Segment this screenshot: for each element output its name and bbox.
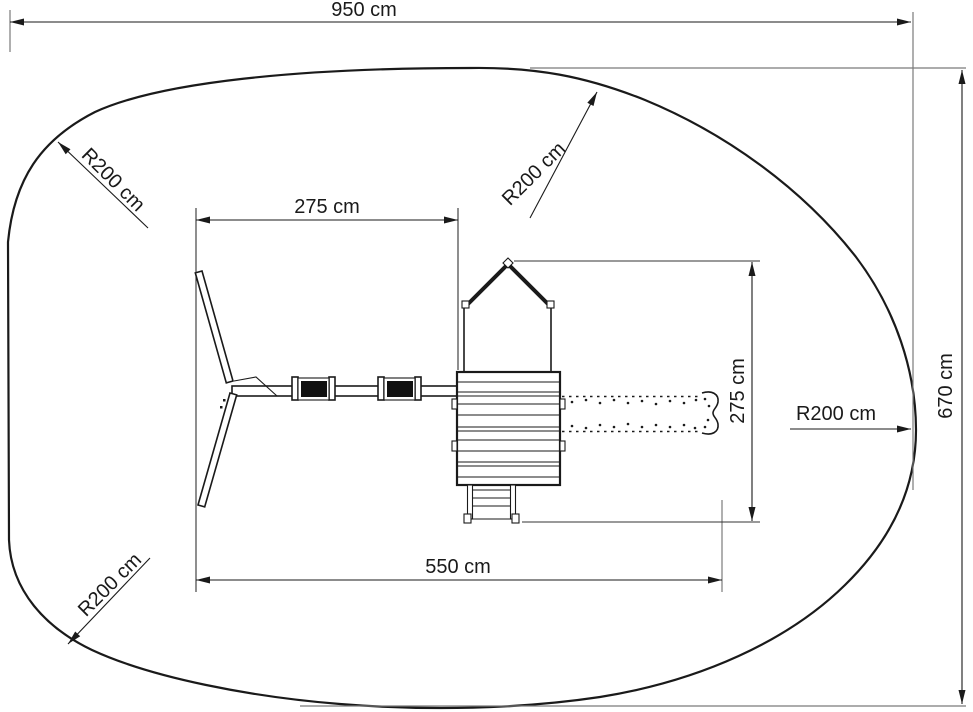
ladder — [464, 485, 519, 523]
tower-post — [560, 441, 565, 451]
dim-overall-width-label: 950 cm — [314, 0, 414, 21]
tower-roof — [462, 258, 554, 372]
tower-post — [452, 399, 457, 409]
playground-dimension-drawing: 950 cm 275 cm 550 cm 275 cm 670 cm R200 … — [0, 0, 973, 712]
slide — [562, 392, 718, 434]
roof-corner — [547, 301, 554, 308]
tower-post — [560, 399, 565, 409]
ladder-foot — [464, 514, 471, 523]
swing-seat — [378, 377, 421, 400]
dim-tower-slide-depth-label: 275 cm — [727, 341, 749, 441]
drawing-canvas — [0, 0, 973, 712]
swing-set — [195, 271, 458, 507]
swing-leg-bottom — [198, 393, 237, 507]
ladder-foot — [512, 514, 519, 523]
tower-post — [452, 441, 457, 451]
slide-texture — [571, 398, 711, 430]
dim-overall-depth-label: 670 cm — [935, 336, 957, 436]
swing-beam — [232, 386, 458, 396]
tower-deck — [452, 372, 565, 485]
radius-callout-right — [790, 426, 911, 433]
swing-leg-top — [195, 271, 233, 383]
dim-tower-slide-depth — [749, 262, 756, 521]
swing-seat — [292, 377, 335, 400]
dim-swing-section-label: 275 cm — [277, 196, 377, 218]
dim-structure-length-label: 550 cm — [408, 556, 508, 578]
dim-overall-depth — [959, 70, 966, 704]
extension-lines — [10, 10, 966, 706]
radius-right-label: R200 cm — [786, 403, 886, 425]
roof-corner — [462, 301, 469, 308]
dim-overall-width — [10, 19, 911, 26]
